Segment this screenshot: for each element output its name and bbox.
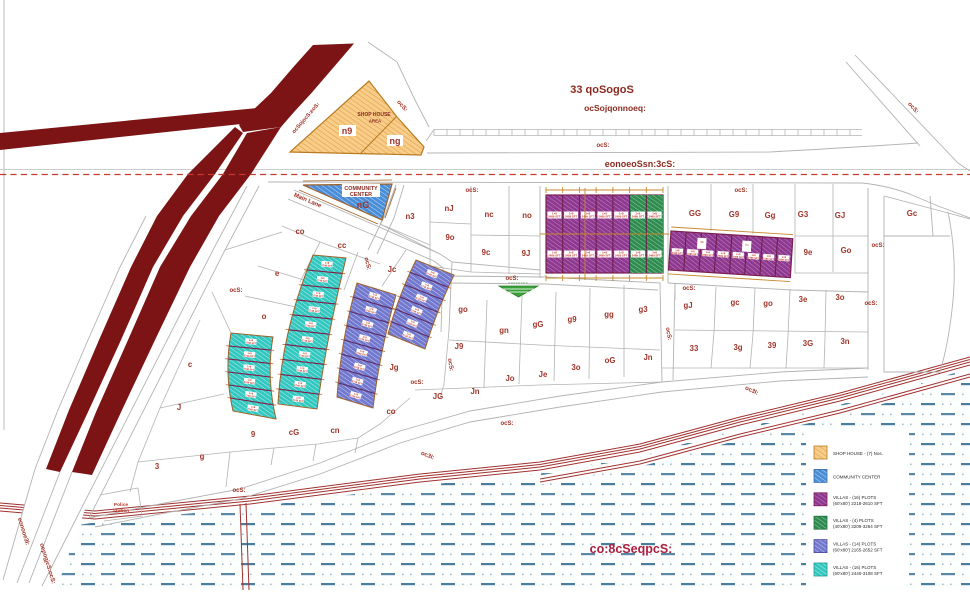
svg-text:9J: 9J (522, 249, 531, 258)
svg-text:J9: J9 (455, 342, 464, 351)
svg-text:Jn: Jn (470, 387, 479, 396)
svg-text:J: J (177, 403, 181, 412)
svg-text:no: no (522, 211, 532, 220)
svg-text:VILLAS - (16) PLOTS: VILLAS - (16) PLOTS (833, 495, 876, 500)
svg-text:2489 SFT: 2489 SFT (548, 215, 561, 219)
svg-text:ocS:: ocS: (864, 301, 877, 307)
svg-text:2489 SFT: 2489 SFT (648, 215, 661, 219)
svg-text:33 qoSogoS: 33 qoSogoS (570, 84, 634, 96)
svg-text:c: c (188, 360, 193, 369)
svg-text:2489 SFT: 2489 SFT (565, 254, 578, 258)
svg-text:n9: n9 (342, 126, 353, 136)
svg-text:ocS:: ocS: (682, 286, 695, 292)
svg-text:2489 SFT: 2489 SFT (615, 215, 628, 219)
svg-text:VILLAS - (14) PLOTS: VILLAS - (14) PLOTS (833, 542, 876, 547)
svg-text:Jo: Jo (505, 374, 514, 383)
svg-text:2489 SFT: 2489 SFT (615, 254, 628, 258)
svg-text:co: co (295, 227, 304, 236)
svg-text:ocS:: ocS: (596, 143, 609, 149)
svg-text:e: e (275, 269, 280, 278)
svg-text:G9: G9 (729, 210, 740, 219)
svg-text:nc: nc (484, 210, 494, 219)
svg-text:36: 36 (590, 237, 594, 241)
svg-text:AREA: AREA (369, 119, 382, 124)
svg-text:9e: 9e (804, 248, 813, 257)
svg-text:39: 39 (768, 341, 777, 350)
svg-text:2489 SFT: 2489 SFT (582, 215, 595, 219)
svg-text:gJ: gJ (683, 301, 692, 310)
svg-text:go: go (458, 305, 468, 314)
svg-text:98: 98 (700, 240, 704, 244)
svg-text:Jn: Jn (643, 353, 652, 362)
svg-text:Jc: Jc (388, 265, 397, 274)
svg-text:3o: 3o (571, 363, 580, 372)
svg-text:GJ: GJ (835, 211, 845, 220)
svg-text:cn: cn (330, 426, 339, 435)
svg-text:ocS:: ocS: (229, 288, 242, 294)
svg-text:9o: 9o (445, 233, 454, 242)
svg-text:n3: n3 (405, 212, 415, 221)
svg-text:ocS:: ocS: (505, 276, 518, 282)
svg-text:co: co (386, 407, 395, 416)
svg-text:3o: 3o (835, 293, 844, 302)
svg-text:gc: gc (730, 298, 740, 307)
svg-text:cG: cG (289, 428, 299, 437)
svg-text:ocS:: ocS: (500, 421, 513, 427)
svg-text:GG: GG (689, 209, 701, 218)
svg-text:Gg: Gg (765, 211, 776, 220)
svg-text:(60'x80') 2165-2652 SFT: (60'x80') 2165-2652 SFT (833, 548, 883, 553)
svg-text:gG: gG (533, 320, 544, 329)
svg-text:SHOP HOUSE: SHOP HOUSE (357, 112, 391, 118)
svg-text:Police: Police (114, 502, 128, 508)
svg-text:Go: Go (841, 246, 852, 255)
svg-text:2489 SFT: 2489 SFT (548, 254, 561, 258)
svg-text:Gc: Gc (907, 209, 918, 218)
svg-text:Je: Je (539, 370, 548, 379)
svg-text:ocSojqonnoeq:: ocSojqonnoeq: (584, 103, 646, 113)
svg-text:3e: 3e (799, 295, 808, 304)
svg-text:ocS:: ocS: (734, 188, 747, 194)
svg-text:3G: 3G (803, 339, 813, 348)
svg-text:Jg: Jg (389, 363, 398, 372)
svg-text:nJ: nJ (444, 204, 453, 213)
svg-text:SHOP HOUSE - (7) Nos.: SHOP HOUSE - (7) Nos. (833, 451, 883, 456)
svg-text:ocS:: ocS: (232, 488, 245, 494)
svg-text:ocS:: ocS: (871, 243, 884, 249)
svg-text:(40'x80') 3209-3264 SFT: (40'x80') 3209-3264 SFT (833, 524, 883, 529)
svg-text:CENTER: CENTER (350, 192, 372, 198)
svg-text:g: g (200, 452, 205, 461)
svg-text:3: 3 (155, 462, 160, 471)
svg-text:cc: cc (338, 241, 347, 250)
svg-text:go: go (763, 299, 773, 308)
svg-text:9: 9 (251, 430, 256, 439)
svg-text:2489 SFT: 2489 SFT (632, 215, 645, 219)
svg-text:g9: g9 (567, 315, 577, 324)
svg-text:2489 SFT: 2489 SFT (598, 215, 611, 219)
svg-text:co:8cSeqpcS:: co:8cSeqpcS: (590, 542, 673, 556)
svg-text:3g: 3g (733, 343, 742, 352)
svg-text:ng: ng (390, 136, 401, 146)
svg-text:gn: gn (499, 326, 509, 335)
svg-text:Station: Station (113, 508, 129, 514)
svg-text:(60'x80') 2440-3108 SFT: (60'x80') 2440-3108 SFT (833, 571, 883, 576)
svg-text:2489 SFT: 2489 SFT (565, 215, 578, 219)
svg-text:36: 36 (590, 207, 594, 211)
svg-text:gg: gg (604, 310, 614, 319)
svg-text:G3: G3 (798, 210, 809, 219)
svg-text:nG: nG (357, 200, 370, 210)
svg-text:JG: JG (433, 392, 443, 401)
svg-text:ocS:: ocS: (465, 188, 478, 194)
svg-text:9n: 9n (745, 243, 749, 247)
svg-text:2489 SFT: 2489 SFT (582, 254, 595, 258)
svg-text:oG: oG (605, 356, 616, 365)
svg-text:2489 SFT: 2489 SFT (598, 254, 611, 258)
svg-text:eonoeoSsn:3cS:: eonoeoSsn:3cS: (605, 159, 676, 169)
svg-text:33: 33 (690, 344, 699, 353)
svg-text:2489 SFT: 2489 SFT (632, 254, 645, 258)
svg-text:o: o (262, 312, 267, 321)
svg-text:ocS:: ocS: (410, 380, 423, 386)
svg-text:VILLAS - (4) PLOTS: VILLAS - (4) PLOTS (833, 518, 874, 523)
svg-text:COMMUNITY CENTER: COMMUNITY CENTER (833, 474, 881, 479)
svg-text:2489 SFT: 2489 SFT (648, 254, 661, 258)
svg-text:VILLAS - (16) PLOTS: VILLAS - (16) PLOTS (833, 565, 876, 570)
svg-text:9c: 9c (482, 248, 491, 257)
svg-text:(60'x80') 2218-2610 SFT: (60'x80') 2218-2610 SFT (833, 501, 883, 506)
svg-text:g3: g3 (638, 305, 648, 314)
svg-text:3n: 3n (840, 337, 849, 346)
